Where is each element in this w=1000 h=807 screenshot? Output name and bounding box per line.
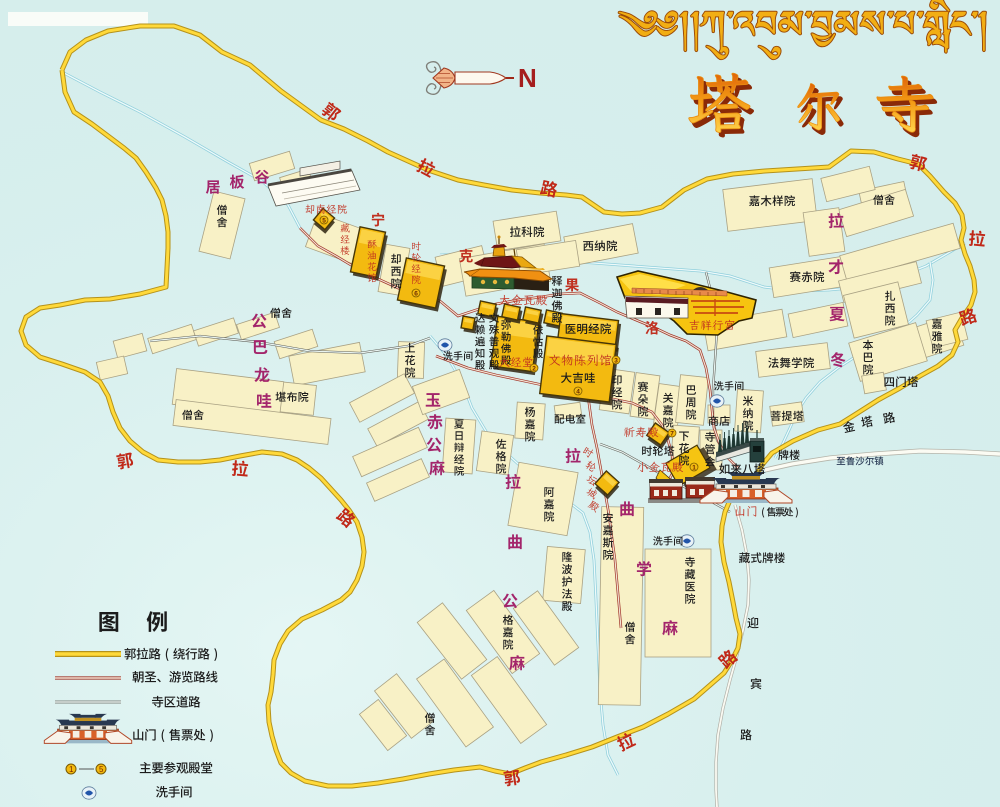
svg-text:4: 4 [576, 388, 580, 395]
svg-text:1: 1 [69, 765, 74, 774]
svg-text:2: 2 [532, 365, 536, 372]
svg-text:1: 1 [692, 464, 696, 471]
svg-text:N: N [518, 63, 537, 93]
svg-text:5: 5 [99, 765, 104, 774]
svg-text:5: 5 [322, 217, 326, 224]
svg-text:6: 6 [414, 290, 418, 297]
svg-text:7: 7 [670, 430, 674, 437]
svg-text:3: 3 [614, 357, 618, 364]
